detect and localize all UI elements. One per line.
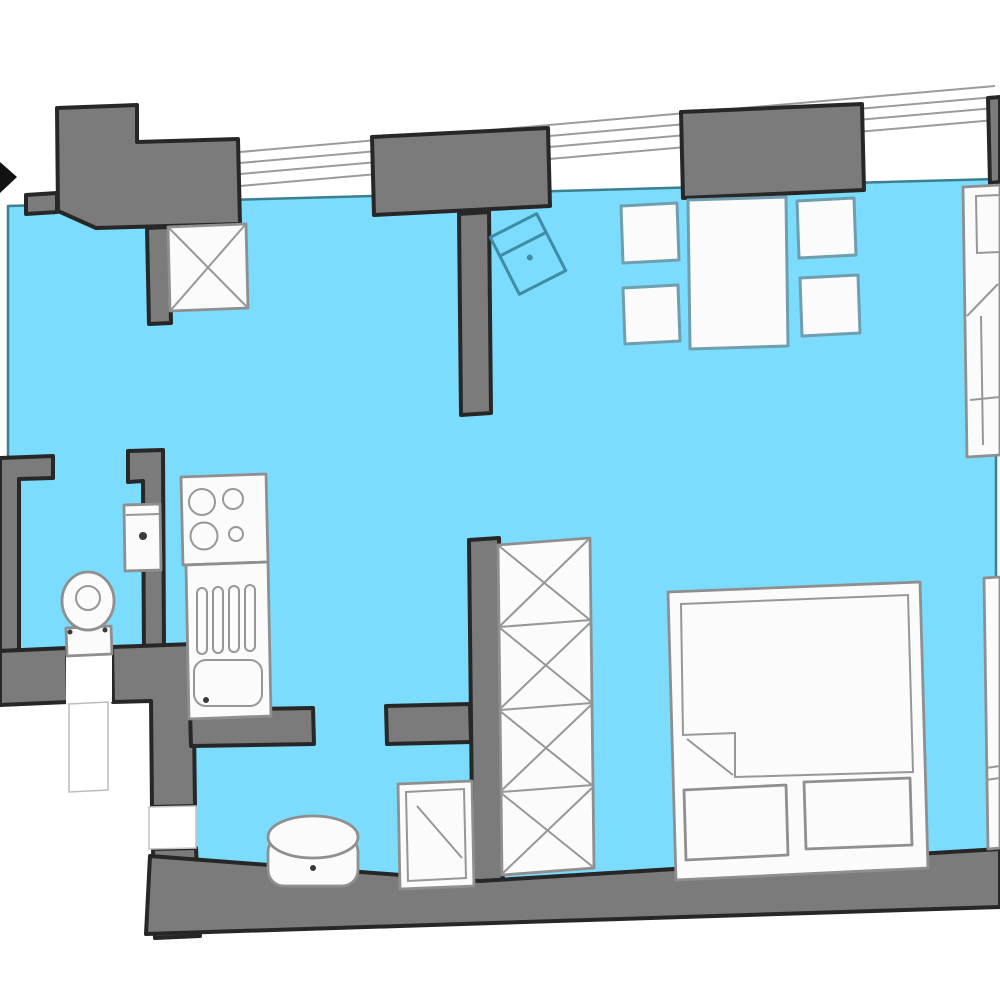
ventilation-shaft-x	[168, 224, 248, 311]
window-pier-2	[372, 128, 550, 215]
wall-stub-under-pier2	[459, 212, 491, 415]
pillow	[684, 785, 788, 860]
floor-plan-canvas	[0, 0, 1000, 1000]
round-boiler	[268, 816, 358, 886]
dining-chair	[797, 198, 856, 258]
kitchen-sink-drainboard	[186, 562, 271, 719]
side-strip-cabinet	[984, 577, 1000, 849]
dining-chair	[623, 285, 680, 344]
entrance-arrow	[0, 162, 17, 193]
dining-chair	[621, 203, 679, 263]
entrance-wall-nub	[26, 193, 57, 214]
left-wall-opening	[149, 806, 196, 849]
toilet-bowl	[62, 572, 114, 630]
stove-4-burners	[181, 474, 268, 565]
couch-right-edge	[963, 185, 1000, 457]
window-glazing-lines	[240, 86, 995, 186]
dining-chair	[800, 275, 860, 336]
bathroom-door-leaf	[69, 702, 108, 792]
bathroom-bottom-right-wall	[112, 644, 195, 807]
wardrobe-x-column	[498, 538, 594, 875]
dining-table	[688, 197, 788, 349]
window-pier-4-corner	[988, 97, 1000, 183]
door-stub-right	[386, 704, 471, 744]
floor-plan-svg	[0, 0, 1000, 1000]
hand-basin	[124, 504, 161, 571]
bathroom-bottom-left-wall	[0, 648, 68, 705]
pillow	[804, 778, 912, 849]
shower-tray	[398, 781, 474, 889]
entrance-wall-block	[57, 105, 240, 228]
window-pier-3	[681, 104, 864, 198]
toilet	[62, 572, 114, 656]
double-bed	[668, 582, 928, 880]
